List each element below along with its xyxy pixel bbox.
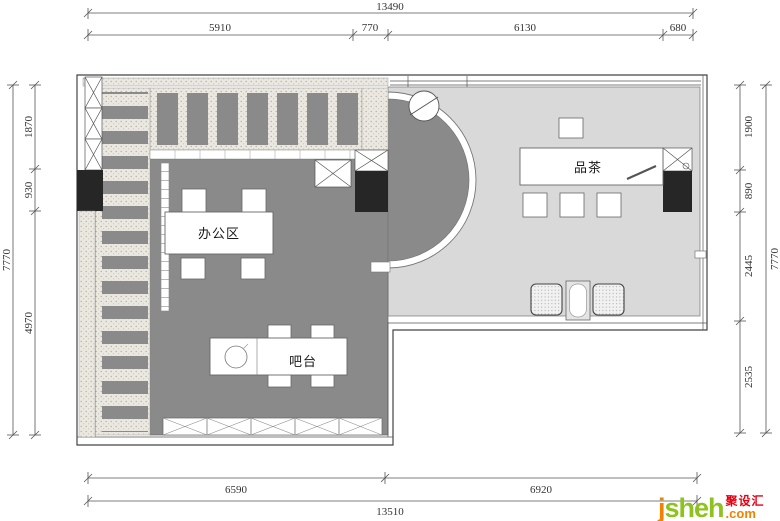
left-wall-column [77, 170, 103, 211]
office-conference-table: 办公区 [165, 212, 273, 254]
dim-right-seg2: 890 [743, 182, 755, 199]
dim-left-overall: 7770 [1, 249, 13, 272]
top-louver-screen [150, 88, 362, 150]
dim-top-seg3: 6130 [514, 22, 537, 34]
dim-top-seg4: 680 [670, 22, 687, 34]
dim-right-seg3: 2445 [743, 255, 755, 278]
dim-right-overall: 7770 [769, 248, 780, 271]
left-wall-stipple [79, 211, 95, 437]
tea-chair-top [559, 118, 583, 138]
partition-column [355, 171, 388, 212]
floor-plan-page: 办公区 吧台 品茶 [0, 0, 780, 521]
dim-top-seg2: 770 [362, 22, 379, 34]
bar-label: 吧台 [289, 354, 317, 369]
dim-top-seg1: 5910 [209, 22, 232, 34]
dim-bottom-overall: 13510 [376, 506, 404, 518]
left-wall-window-panels [85, 77, 102, 170]
partition-wall-stipple [362, 88, 388, 152]
dim-left-seg1: 1870 [23, 116, 35, 139]
tea-chairs-bottom [523, 193, 621, 217]
tea-floor-cushions [531, 281, 624, 320]
bottom-window-row [163, 418, 382, 435]
dim-right-seg4: 2535 [743, 366, 755, 389]
arc-pivot-fixture [409, 91, 439, 121]
office-area-label: 办公区 [198, 226, 240, 241]
floor-plan-canvas: 办公区 吧台 品茶 [0, 0, 780, 521]
tea-label: 品茶 [574, 160, 602, 175]
dim-top-overall: 13490 [376, 1, 404, 13]
dim-right-seg1: 1900 [743, 116, 755, 139]
logo-sheh: sheh [665, 493, 724, 521]
site-watermark-logo: jsheh 聚设汇 .com [658, 480, 780, 520]
office-cabinet [315, 160, 351, 187]
right-wall-break [695, 251, 706, 258]
dim-left-seg3: 4970 [23, 312, 35, 335]
dim-bottom-seg1: 6590 [225, 484, 248, 496]
tea-wall-column [663, 171, 692, 212]
partition-cabinet [355, 150, 388, 171]
tea-table: 品茶 [520, 148, 663, 185]
dim-left-seg2: 930 [23, 181, 35, 198]
office-top-track [150, 150, 388, 159]
bar-sink [225, 346, 247, 368]
door-opening-stub [371, 262, 390, 272]
logo-wordmark: jsheh [658, 496, 724, 520]
left-louver-screen [95, 88, 150, 435]
tea-wall-cabinet [663, 148, 692, 171]
dim-bottom-seg2: 6920 [530, 484, 553, 496]
logo-tld: .com [726, 507, 765, 520]
bar-counter: 吧台 [210, 338, 347, 375]
